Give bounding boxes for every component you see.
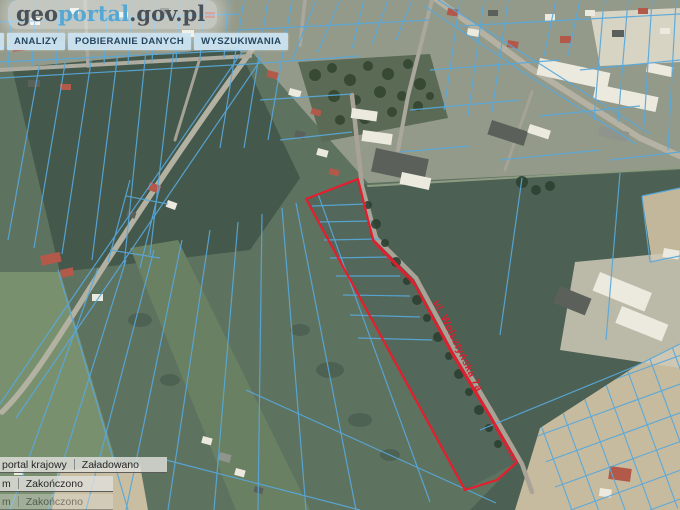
layer-status-panel: portal krajowy Załadowano m Zakończono m…: [0, 457, 167, 510]
layer-state: Zakończono: [26, 478, 83, 490]
logo-text-govpl: .gov.pl: [129, 1, 205, 26]
menu-item-wyszukiwania[interactable]: WYSZUKIWANIA: [194, 33, 288, 50]
menu-item-clipped[interactable]: [0, 33, 4, 50]
top-menu-bar: ANALIZY POBIERANIE DANYCH WYSZUKIWANIA: [0, 33, 288, 50]
status-separator: [18, 478, 19, 489]
logo-text-geo: geo: [16, 1, 58, 26]
layer-name: m: [2, 496, 11, 508]
layer-status-row: m Zakończono: [0, 476, 113, 492]
menu-item-pobieranie-danych[interactable]: POBIERANIE DANYCH: [68, 33, 191, 50]
status-separator: [18, 496, 19, 507]
status-separator: [74, 459, 75, 470]
layer-state: Zakończono: [26, 496, 83, 508]
layer-status-row: portal krajowy Załadowano: [0, 457, 167, 473]
layer-name: portal krajowy: [2, 459, 67, 471]
layer-status-row: m Zakończono: [0, 494, 113, 510]
layer-state: Załadowano: [82, 459, 139, 471]
layer-name: m: [2, 478, 11, 490]
map-viewport[interactable]: ul. Wolsztyńska 7a geoportal.gov.pl ANAL…: [0, 0, 680, 510]
menu-item-analizy[interactable]: ANALIZY: [7, 33, 65, 50]
logo-text-portal: portal: [58, 1, 129, 26]
geoportal-logo[interactable]: geoportal.gov.pl: [8, 0, 217, 29]
map-canvas[interactable]: ul. Wolsztyńska 7a: [0, 0, 680, 510]
